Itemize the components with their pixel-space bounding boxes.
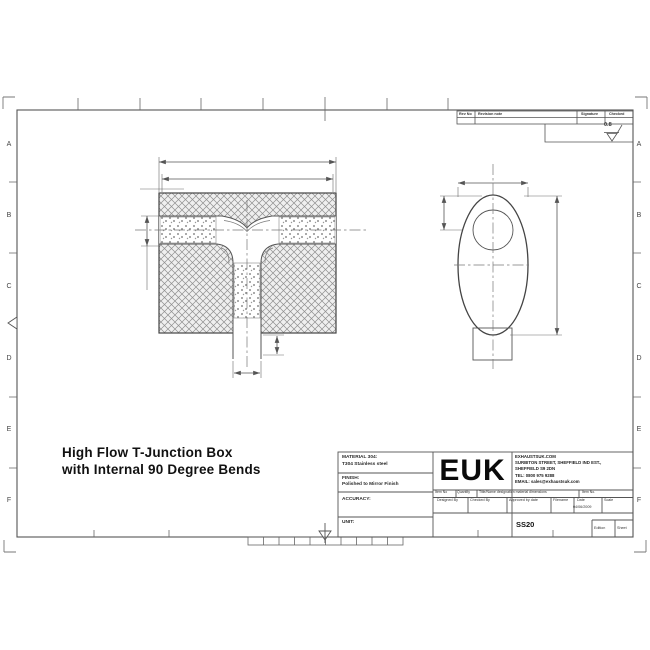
- filename-label: Filename: [553, 499, 568, 503]
- cad-line-art: [0, 0, 650, 650]
- signature-header: Signature: [581, 113, 598, 117]
- edition-label: Edition: [594, 527, 605, 531]
- designed-by-label: Designed By: [437, 499, 458, 503]
- centering-marks: [8, 317, 331, 543]
- finish-value: Polished to Mirror Finish: [342, 482, 399, 487]
- drawing-title-line2: with Internal 90 Degree Bends: [62, 463, 261, 477]
- revision-note-header: Revision note: [478, 113, 502, 117]
- zone-label-left-c: C: [4, 283, 14, 290]
- approved-by-label: Approved by date: [509, 499, 538, 503]
- zone-label-right-d: D: [634, 355, 644, 362]
- zone-label-left-f: F: [4, 497, 14, 504]
- scale-label: Scale: [604, 499, 613, 503]
- quantity-header: Quantity: [457, 491, 470, 495]
- zone-label-right-f: F: [634, 497, 644, 504]
- accuracy-label: ACCURACY:: [342, 497, 371, 502]
- zone-label-left-e: E: [4, 426, 14, 433]
- company-address-block: EXHAUSTSUK.COM SURBITON STREET, SHEFFIEL…: [515, 454, 601, 486]
- unit-label: UNIT:: [342, 520, 354, 525]
- drawing-number: SS20: [516, 521, 534, 529]
- rev-no-header: Rev No: [459, 113, 472, 117]
- oval-end-view: [440, 164, 562, 369]
- surface-finish-value: 0.8: [604, 123, 612, 129]
- sheet-label: Sheet: [617, 527, 627, 531]
- zone-label-right-a: A: [634, 141, 644, 148]
- material-value: T304 Stainless steel: [342, 462, 388, 467]
- date-value: 04/06/2009: [573, 506, 591, 510]
- zone-label-left-d: D: [4, 355, 14, 362]
- zone-label-left-b: B: [4, 212, 14, 219]
- tjunction-section-view: [135, 157, 367, 378]
- title-name-header: Title/Name designation material dimensio…: [479, 491, 547, 495]
- zone-label-left-a: A: [4, 141, 14, 148]
- drawing-title-line1: High Flow T-Junction Box: [62, 446, 233, 460]
- finish-label: FINISH:: [342, 476, 359, 481]
- item-no-header: Item No: [435, 491, 447, 495]
- checked-header: Checked: [609, 113, 624, 117]
- date-label: Date: [577, 499, 585, 503]
- drawing-sheet: High Flow T-Junction Box with Internal 9…: [0, 0, 650, 650]
- reference-scale-bar: [248, 537, 403, 545]
- item-no2-header: Item No.: [582, 491, 595, 495]
- material-label: MATERIAL 304:: [342, 455, 377, 460]
- company-line: EMAIL: sales@exhaustsuk.com: [515, 479, 601, 485]
- zone-label-right-b: B: [634, 212, 644, 219]
- zone-label-right-c: C: [634, 283, 644, 290]
- company-logo: EUK: [433, 452, 512, 490]
- checked-by-label: Checked By: [470, 499, 490, 503]
- zone-label-right-e: E: [634, 426, 644, 433]
